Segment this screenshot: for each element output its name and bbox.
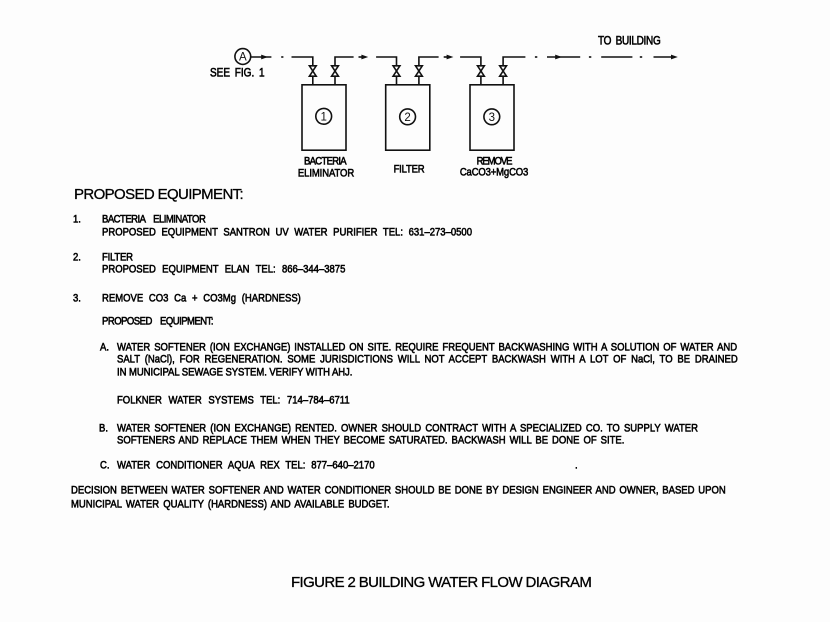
svg-text:A: A: [239, 52, 247, 64]
svg-text:2: 2: [404, 112, 410, 124]
svg-text:1: 1: [320, 111, 326, 123]
svg-text:3: 3: [489, 112, 495, 124]
